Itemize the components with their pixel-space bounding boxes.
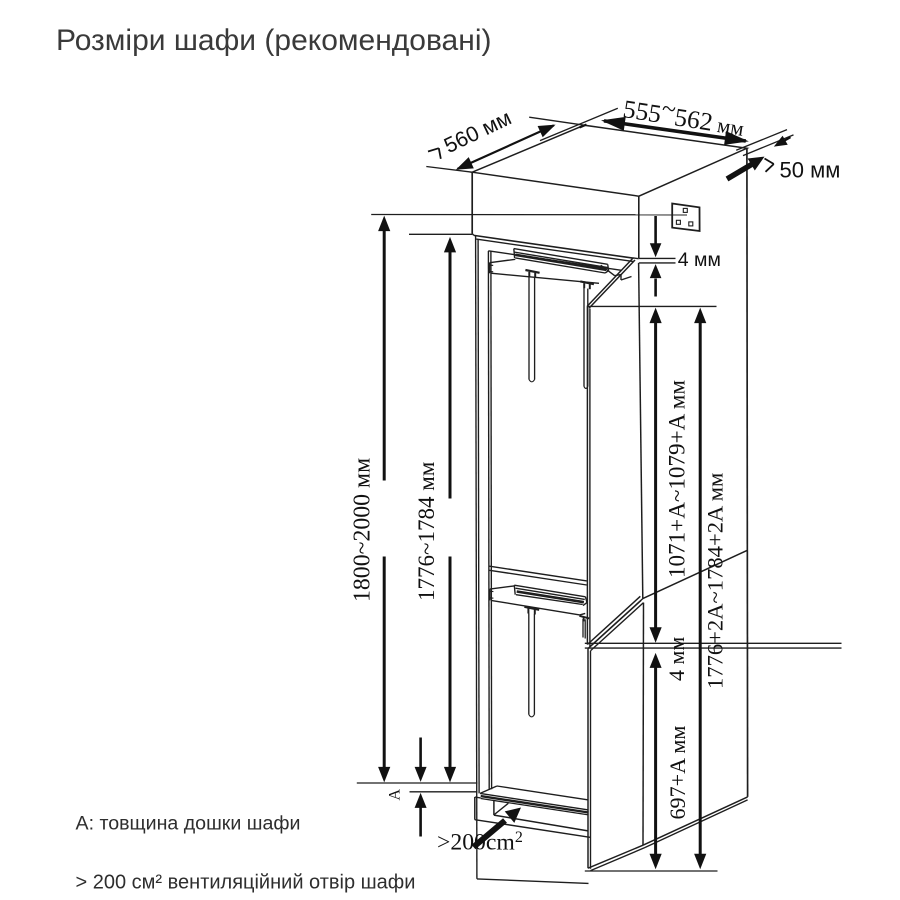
svg-text:А: А: [387, 789, 404, 801]
svg-text:1071+A~1079+A мм: 1071+A~1079+A мм: [664, 380, 690, 578]
svg-text:1776+2A~1784+2A мм: 1776+2A~1784+2A мм: [703, 473, 728, 689]
svg-text:4 мм: 4 мм: [678, 249, 721, 271]
svg-text:>200cm2: >200cm2: [437, 829, 523, 856]
svg-text:1800~2000 мм: 1800~2000 мм: [350, 458, 376, 602]
svg-text:А: товщина дошки шафи: А: товщина дошки шафи: [76, 813, 301, 835]
svg-text:Розміри шафи (рекомендовані): Розміри шафи (рекомендовані): [56, 24, 491, 57]
svg-text:> 200 см² вентиляційний отвір: > 200 см² вентиляційний отвір шафи: [76, 872, 416, 894]
svg-text:50 мм: 50 мм: [780, 158, 841, 183]
svg-text:697+A мм: 697+A мм: [665, 726, 690, 820]
svg-text:4 мм: 4 мм: [664, 637, 689, 681]
svg-text:1776~1784 мм: 1776~1784 мм: [414, 461, 439, 601]
